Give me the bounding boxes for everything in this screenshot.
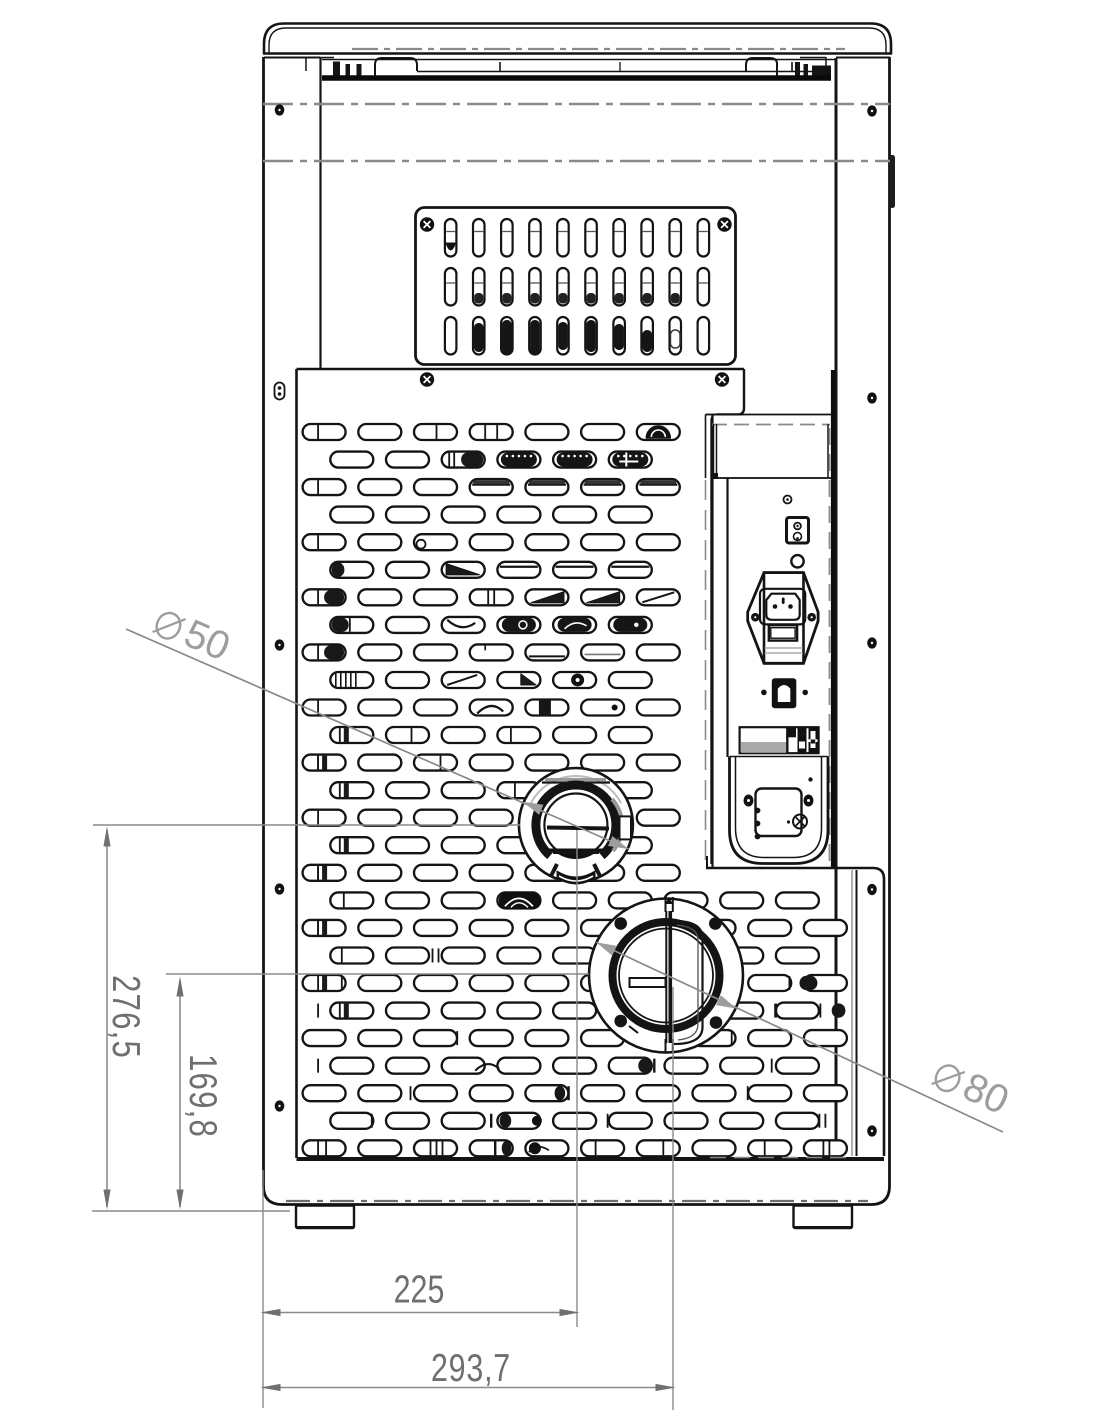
svg-text:169,8: 169,8 [181, 1054, 224, 1138]
svg-text:293,7: 293,7 [431, 1346, 511, 1389]
svg-text:225: 225 [394, 1268, 445, 1311]
svg-text:276,5: 276,5 [104, 975, 147, 1059]
